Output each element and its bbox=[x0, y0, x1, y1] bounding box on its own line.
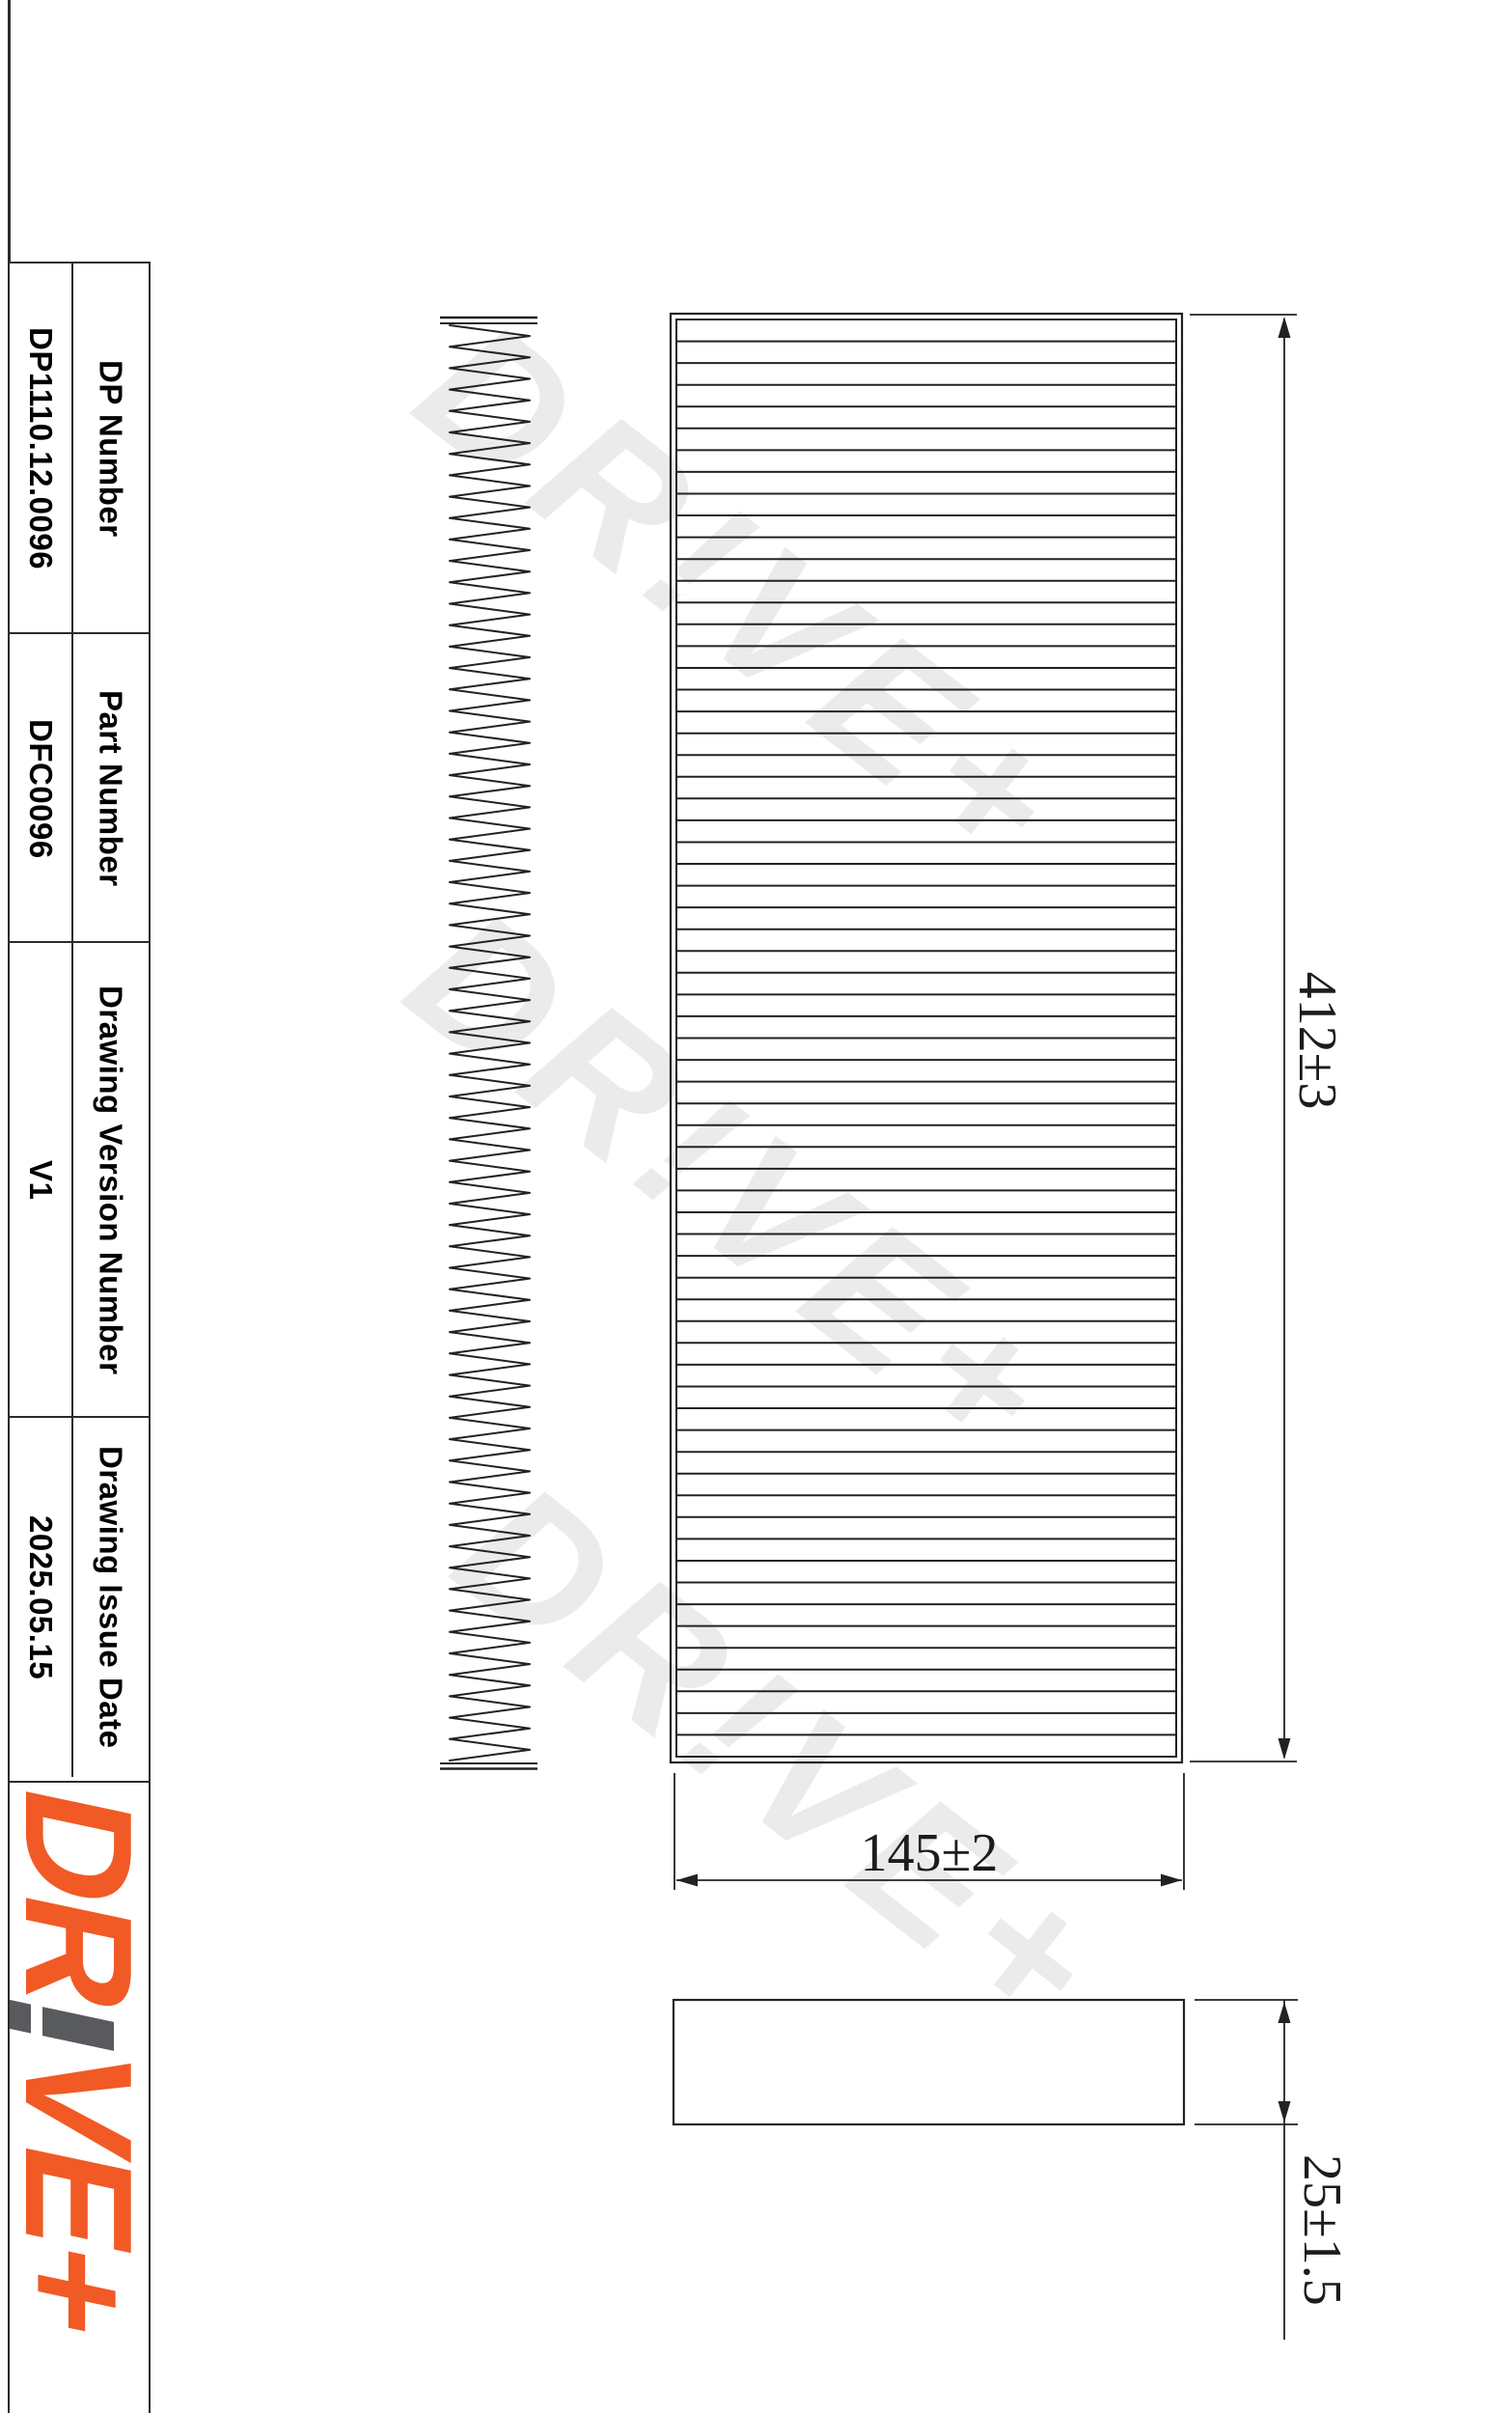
dimension-length: 412±3 bbox=[1190, 315, 1347, 1761]
filter-top-view bbox=[671, 314, 1182, 1762]
logo-exclamation-bar bbox=[43, 2007, 115, 2051]
thickness-side-view bbox=[674, 2000, 1184, 2124]
table-row: V1 Drawing Version Number bbox=[10, 943, 149, 1418]
dim-width-text: 145±2 bbox=[861, 1823, 999, 1883]
arrow-right-icon bbox=[1161, 1874, 1182, 1887]
dim-length-text: 412±3 bbox=[1287, 972, 1347, 1110]
logo-exclamation-dot bbox=[8, 1998, 32, 2033]
issue-date-value-cell: 2025.05.15 bbox=[10, 1418, 73, 1777]
table-row: 2025.05.15 Drawing Issue Date bbox=[10, 1418, 149, 1777]
table-row: DFC0096 Part Number bbox=[10, 634, 149, 943]
issue-date-label-cell: Drawing Issue Date bbox=[73, 1418, 148, 1777]
table-row: DP1110.12.0096 DP Number bbox=[10, 263, 149, 634]
drawing-version-value: V1 bbox=[22, 1160, 59, 1200]
drive-plus-logo: DR VE+ bbox=[8, 1779, 151, 2348]
filter-technical-drawing: 412±3 145±2 25±1.5 bbox=[0, 0, 1512, 2413]
part-number-value: DFC0096 bbox=[22, 719, 59, 859]
arrow-up-icon bbox=[1278, 317, 1291, 338]
pleat-lines bbox=[676, 342, 1176, 1735]
arrow-left-icon bbox=[676, 1874, 698, 1887]
dimension-width: 145±2 bbox=[674, 1773, 1184, 1890]
arrow-up-icon bbox=[1278, 2002, 1291, 2023]
title-block-table: DP1110.12.0096 DP Number DFC0096 Part Nu… bbox=[8, 262, 151, 1783]
pleat-zigzag bbox=[450, 325, 530, 1761]
issue-date-label: Drawing Issue Date bbox=[93, 1446, 129, 1748]
dp-number-label: DP Number bbox=[93, 360, 129, 538]
dimension-thickness: 25±1.5 bbox=[1195, 2000, 1352, 2340]
arrow-down-icon bbox=[1278, 1738, 1291, 1760]
pleat-side-view bbox=[440, 318, 537, 1769]
logo-text-dr: DR bbox=[8, 1779, 151, 2021]
drawing-sheet: { "table": { "rows": [ { "label": "DP Nu… bbox=[0, 0, 1512, 2413]
drawing-version-label-cell: Drawing Version Number bbox=[73, 943, 148, 1418]
part-number-value-cell: DFC0096 bbox=[10, 634, 73, 943]
logo-text-ve-plus: VE+ bbox=[8, 2035, 151, 2348]
dp-number-value: DP1110.12.0096 bbox=[22, 327, 59, 569]
brand-logo-box: DR VE+ bbox=[8, 1779, 151, 2413]
drawing-version-label: Drawing Version Number bbox=[93, 985, 129, 1374]
dp-number-label-cell: DP Number bbox=[73, 263, 148, 634]
issue-date-value: 2025.05.15 bbox=[22, 1515, 59, 1679]
drawing-version-value-cell: V1 bbox=[10, 943, 73, 1418]
part-number-label: Part Number bbox=[93, 690, 129, 887]
dim-thickness-text: 25±1.5 bbox=[1292, 2154, 1352, 2306]
arrow-down-icon bbox=[1278, 2101, 1291, 2122]
brand-logo: DR VE+ bbox=[10, 1779, 148, 2413]
part-number-label-cell: Part Number bbox=[73, 634, 148, 943]
dp-number-value-cell: DP1110.12.0096 bbox=[10, 263, 73, 634]
